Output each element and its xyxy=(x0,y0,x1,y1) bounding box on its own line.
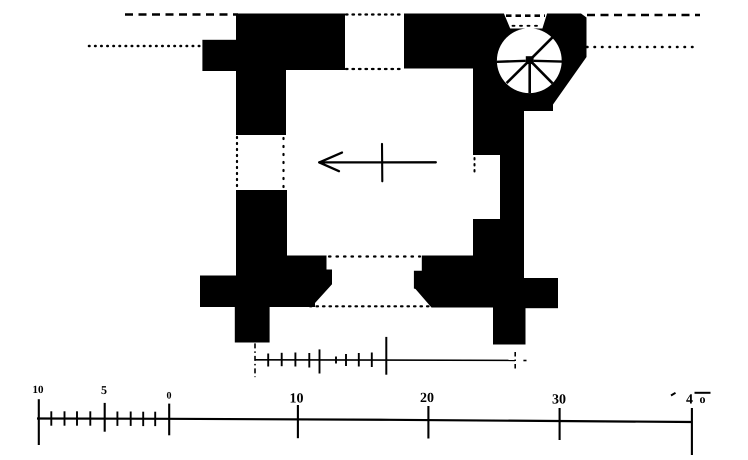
svg-text:30: 30 xyxy=(552,393,566,408)
svg-text:0: 0 xyxy=(167,391,172,402)
svg-text:10: 10 xyxy=(33,384,45,396)
svg-text:4: 4 xyxy=(686,393,693,408)
svg-text:10: 10 xyxy=(290,392,304,407)
svg-text:20: 20 xyxy=(420,391,434,406)
svg-text:5: 5 xyxy=(101,383,107,397)
svg-text:o: o xyxy=(700,392,706,406)
